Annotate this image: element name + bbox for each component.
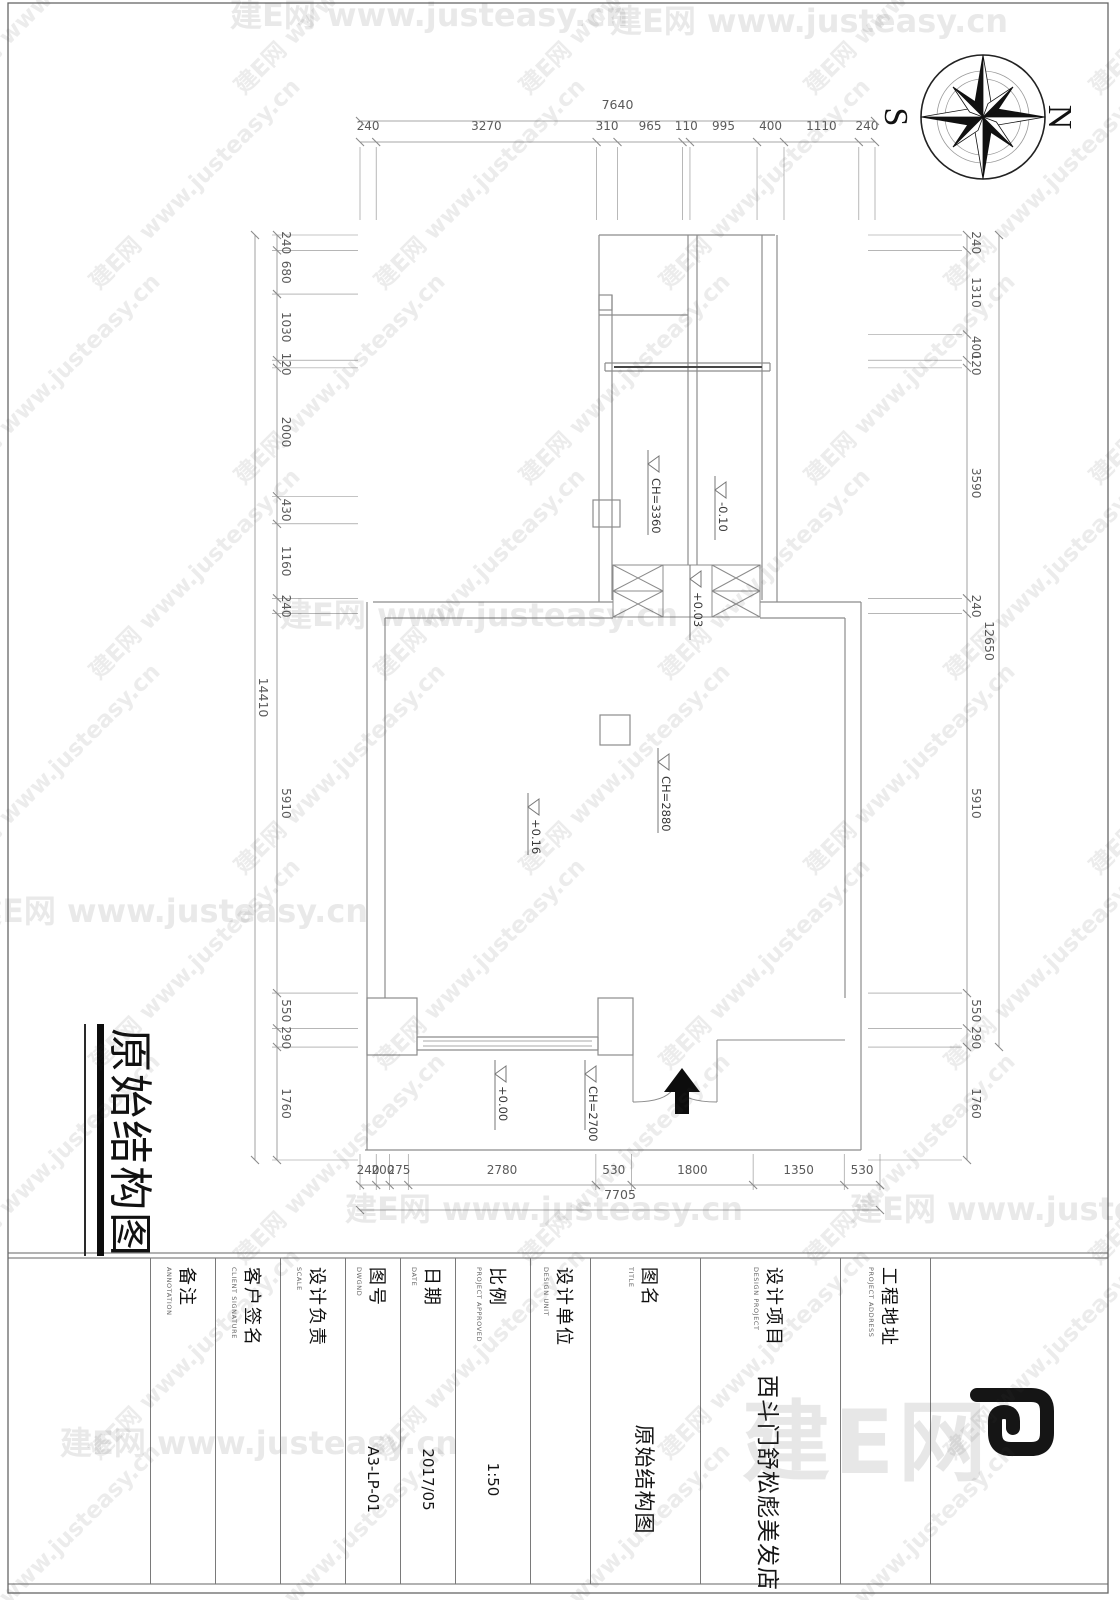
dim-label: 120 [279, 353, 293, 376]
titleblock-value: 1:50 [484, 1375, 502, 1584]
titleblock-caption: SCALE [295, 1267, 303, 1375]
titleblock-label: 备注 [175, 1267, 201, 1375]
dim-label: 530 [851, 1163, 874, 1177]
level-annotation: CH=3360 [648, 450, 663, 535]
titleblock-caption: ANNOTATION [165, 1267, 173, 1375]
titleblock-label-block: 比例PROJECT APPROVED [475, 1258, 511, 1375]
compass-south-label: S [877, 108, 914, 127]
level-annotation: +0.03 [690, 565, 705, 640]
titleblock-cell-设计单位: 设计单位DESIGN UNIT [530, 1258, 590, 1584]
level-value: -0.10 [716, 502, 730, 532]
titleblock-label: 设计负责 [305, 1267, 331, 1375]
titleblock-label-block: 设计负责SCALE [295, 1258, 331, 1375]
dim-label: 2000 [279, 417, 293, 448]
dim-label: 7640 [602, 97, 634, 112]
titleblock-label-block: 备注ANNOTATION [165, 1258, 201, 1375]
dim-label: 430 [279, 499, 293, 522]
level-annotation: +0.00 [495, 1060, 510, 1130]
drawing-title-underline-thin [84, 1024, 86, 1256]
plan-walls [365, 235, 861, 1150]
dim-label: 1760 [969, 1088, 983, 1119]
titleblock-cell-设计负责: 设计负责SCALE [280, 1258, 345, 1584]
titleblock-label: 比例 [485, 1267, 511, 1375]
drawing-title: 原始结构图 [102, 1028, 166, 1268]
level-annotation: CH=2880 [658, 748, 673, 833]
titleblock-caption: PROJECT APPROVED [475, 1267, 483, 1375]
level-annotation: -0.10 [715, 476, 730, 540]
titleblock-label: 工程地址 [878, 1267, 904, 1375]
dim-label: 5910 [969, 788, 983, 819]
dim-label: 120 [969, 353, 983, 376]
dim-label: 530 [602, 1163, 625, 1177]
titleblock-label: 设计项目 [763, 1267, 789, 1375]
dim-label: 240 [279, 595, 293, 618]
dimension-chain: 240327031096511099540011102407640 [356, 97, 879, 220]
titleblock-caption: DWGND [355, 1267, 363, 1375]
level-value: CH=2700 [586, 1086, 600, 1142]
dim-label: 1350 [783, 1163, 814, 1177]
titleblock-label-block: 日期DATE [410, 1258, 446, 1375]
dim-label: 3590 [969, 468, 983, 499]
floorplan-sheet-page: { "watermark": { "tile_text": "建E网 www.j… [0, 0, 1120, 1600]
dim-label: 290 [279, 1026, 293, 1049]
titleblock-label: 图名 [638, 1267, 664, 1375]
titleblock-cell-logo [930, 1258, 1108, 1584]
dim-label: 1800 [677, 1163, 708, 1177]
level-annotation: +0.16 [528, 793, 543, 855]
dim-label: 680 [279, 261, 293, 284]
titleblock-caption: DESIGN PROJECT [753, 1267, 761, 1375]
titleblock-label-block: 图号DWGND [355, 1258, 391, 1375]
titleblock-caption: DESIGN UNIT [543, 1267, 551, 1375]
titleblock-cell-图名: 图名TITLE原始结构图 [590, 1258, 700, 1584]
titleblock-cell-图号: 图号DWGNDA3-LP-01 [345, 1258, 400, 1584]
titleblock-caption: CLIENT SIGNATURE [230, 1267, 238, 1375]
pier [598, 998, 633, 1055]
drawing-sheet: N S [0, 0, 1120, 1600]
titleblock-caption: DATE [410, 1267, 418, 1375]
level-value: CH=2880 [659, 776, 673, 832]
level-value: +0.16 [529, 819, 543, 854]
titleblock-value: 原始结构图 [631, 1375, 661, 1584]
dimension-chain: 2406801030120200043011602405910550290176… [251, 231, 358, 1164]
structural-columns [613, 565, 760, 617]
dim-label: 290 [969, 1026, 983, 1049]
titleblock-cell-日期: 日期DATE2017/05 [400, 1258, 455, 1584]
dim-label: 2780 [487, 1163, 518, 1177]
level-value: +0.00 [496, 1086, 510, 1121]
compass-rose-icon: N S [877, 55, 1078, 179]
title-block: 工程地址PROJECT ADDRESS设计项目DESIGN PROJECT西斗门… [8, 1258, 1108, 1584]
level-value: +0.03 [691, 592, 705, 627]
dim-label: 1030 [279, 312, 293, 343]
titleblock-value: A3-LP-01 [364, 1375, 382, 1584]
titleblock-caption: PROJECT ADDRESS [868, 1267, 876, 1375]
dimension-chain: 2402002752780530180013505307705 [356, 1154, 884, 1214]
dimension-chains: 2403270310965110995400111024076402401310… [251, 97, 1003, 1214]
dim-label: 12650 [982, 621, 997, 661]
titleblock-empty-cell [10, 1258, 150, 1584]
titleblock-label-block: 图名TITLE [628, 1258, 664, 1375]
dim-label: 275 [388, 1163, 411, 1177]
entry-arrow-icon [664, 1068, 700, 1114]
level-annotation: CH=2700 [585, 1060, 600, 1142]
titleblock-cell-客户签名: 客户签名CLIENT SIGNATURE [215, 1258, 280, 1584]
titleblock-cell-备注: 备注ANNOTATION [150, 1258, 215, 1584]
dimension-chain: 240131040012035902405910550290176012650 [868, 231, 1003, 1164]
entry-double-door [633, 1040, 845, 1102]
titleblock-label-block: 工程地址PROJECT ADDRESS [868, 1258, 904, 1375]
dim-label: 5910 [279, 788, 293, 819]
titleblock-value: 西斗门舒松彪美发店 [754, 1375, 788, 1591]
dim-label: 14410 [256, 678, 271, 718]
storefront-window [417, 1037, 598, 1050]
titleblock-cell-设计项目: 设计项目DESIGN PROJECT西斗门舒松彪美发店 [700, 1258, 840, 1584]
titleblock-cell-工程地址: 工程地址PROJECT ADDRESS [840, 1258, 930, 1584]
drawing-title-underline [97, 1024, 104, 1256]
level-value: CH=3360 [649, 478, 663, 534]
dim-label: 240 [969, 231, 983, 254]
titleblock-label-block: 设计单位DESIGN UNIT [543, 1258, 579, 1375]
dim-label: 550 [969, 999, 983, 1022]
dim-label: 240 [279, 231, 293, 254]
titleblock-label: 客户签名 [240, 1267, 266, 1375]
dim-label: 550 [279, 999, 293, 1022]
titleblock-cell-比例: 比例PROJECT APPROVED1:50 [455, 1258, 530, 1584]
storefront [367, 998, 845, 1114]
pier [367, 998, 417, 1055]
compass-north-label: N [1041, 105, 1078, 130]
titleblock-label: 日期 [420, 1267, 446, 1375]
dim-label: 1160 [279, 546, 293, 577]
titleblock-caption: TITLE [628, 1267, 636, 1375]
dim-label: 7705 [604, 1187, 636, 1202]
titleblock-value: 2017/05 [419, 1375, 437, 1584]
brand-logo-icon [970, 1258, 1070, 1584]
dim-label: 1760 [279, 1088, 293, 1119]
dim-label: 240 [969, 595, 983, 618]
titleblock-label-block: 设计项目DESIGN PROJECT [753, 1258, 789, 1375]
titleblock-label: 图号 [365, 1267, 391, 1375]
dim-label: 1310 [969, 277, 983, 308]
titleblock-label-block: 客户签名CLIENT SIGNATURE [230, 1258, 266, 1375]
titleblock-label: 设计单位 [553, 1267, 579, 1375]
